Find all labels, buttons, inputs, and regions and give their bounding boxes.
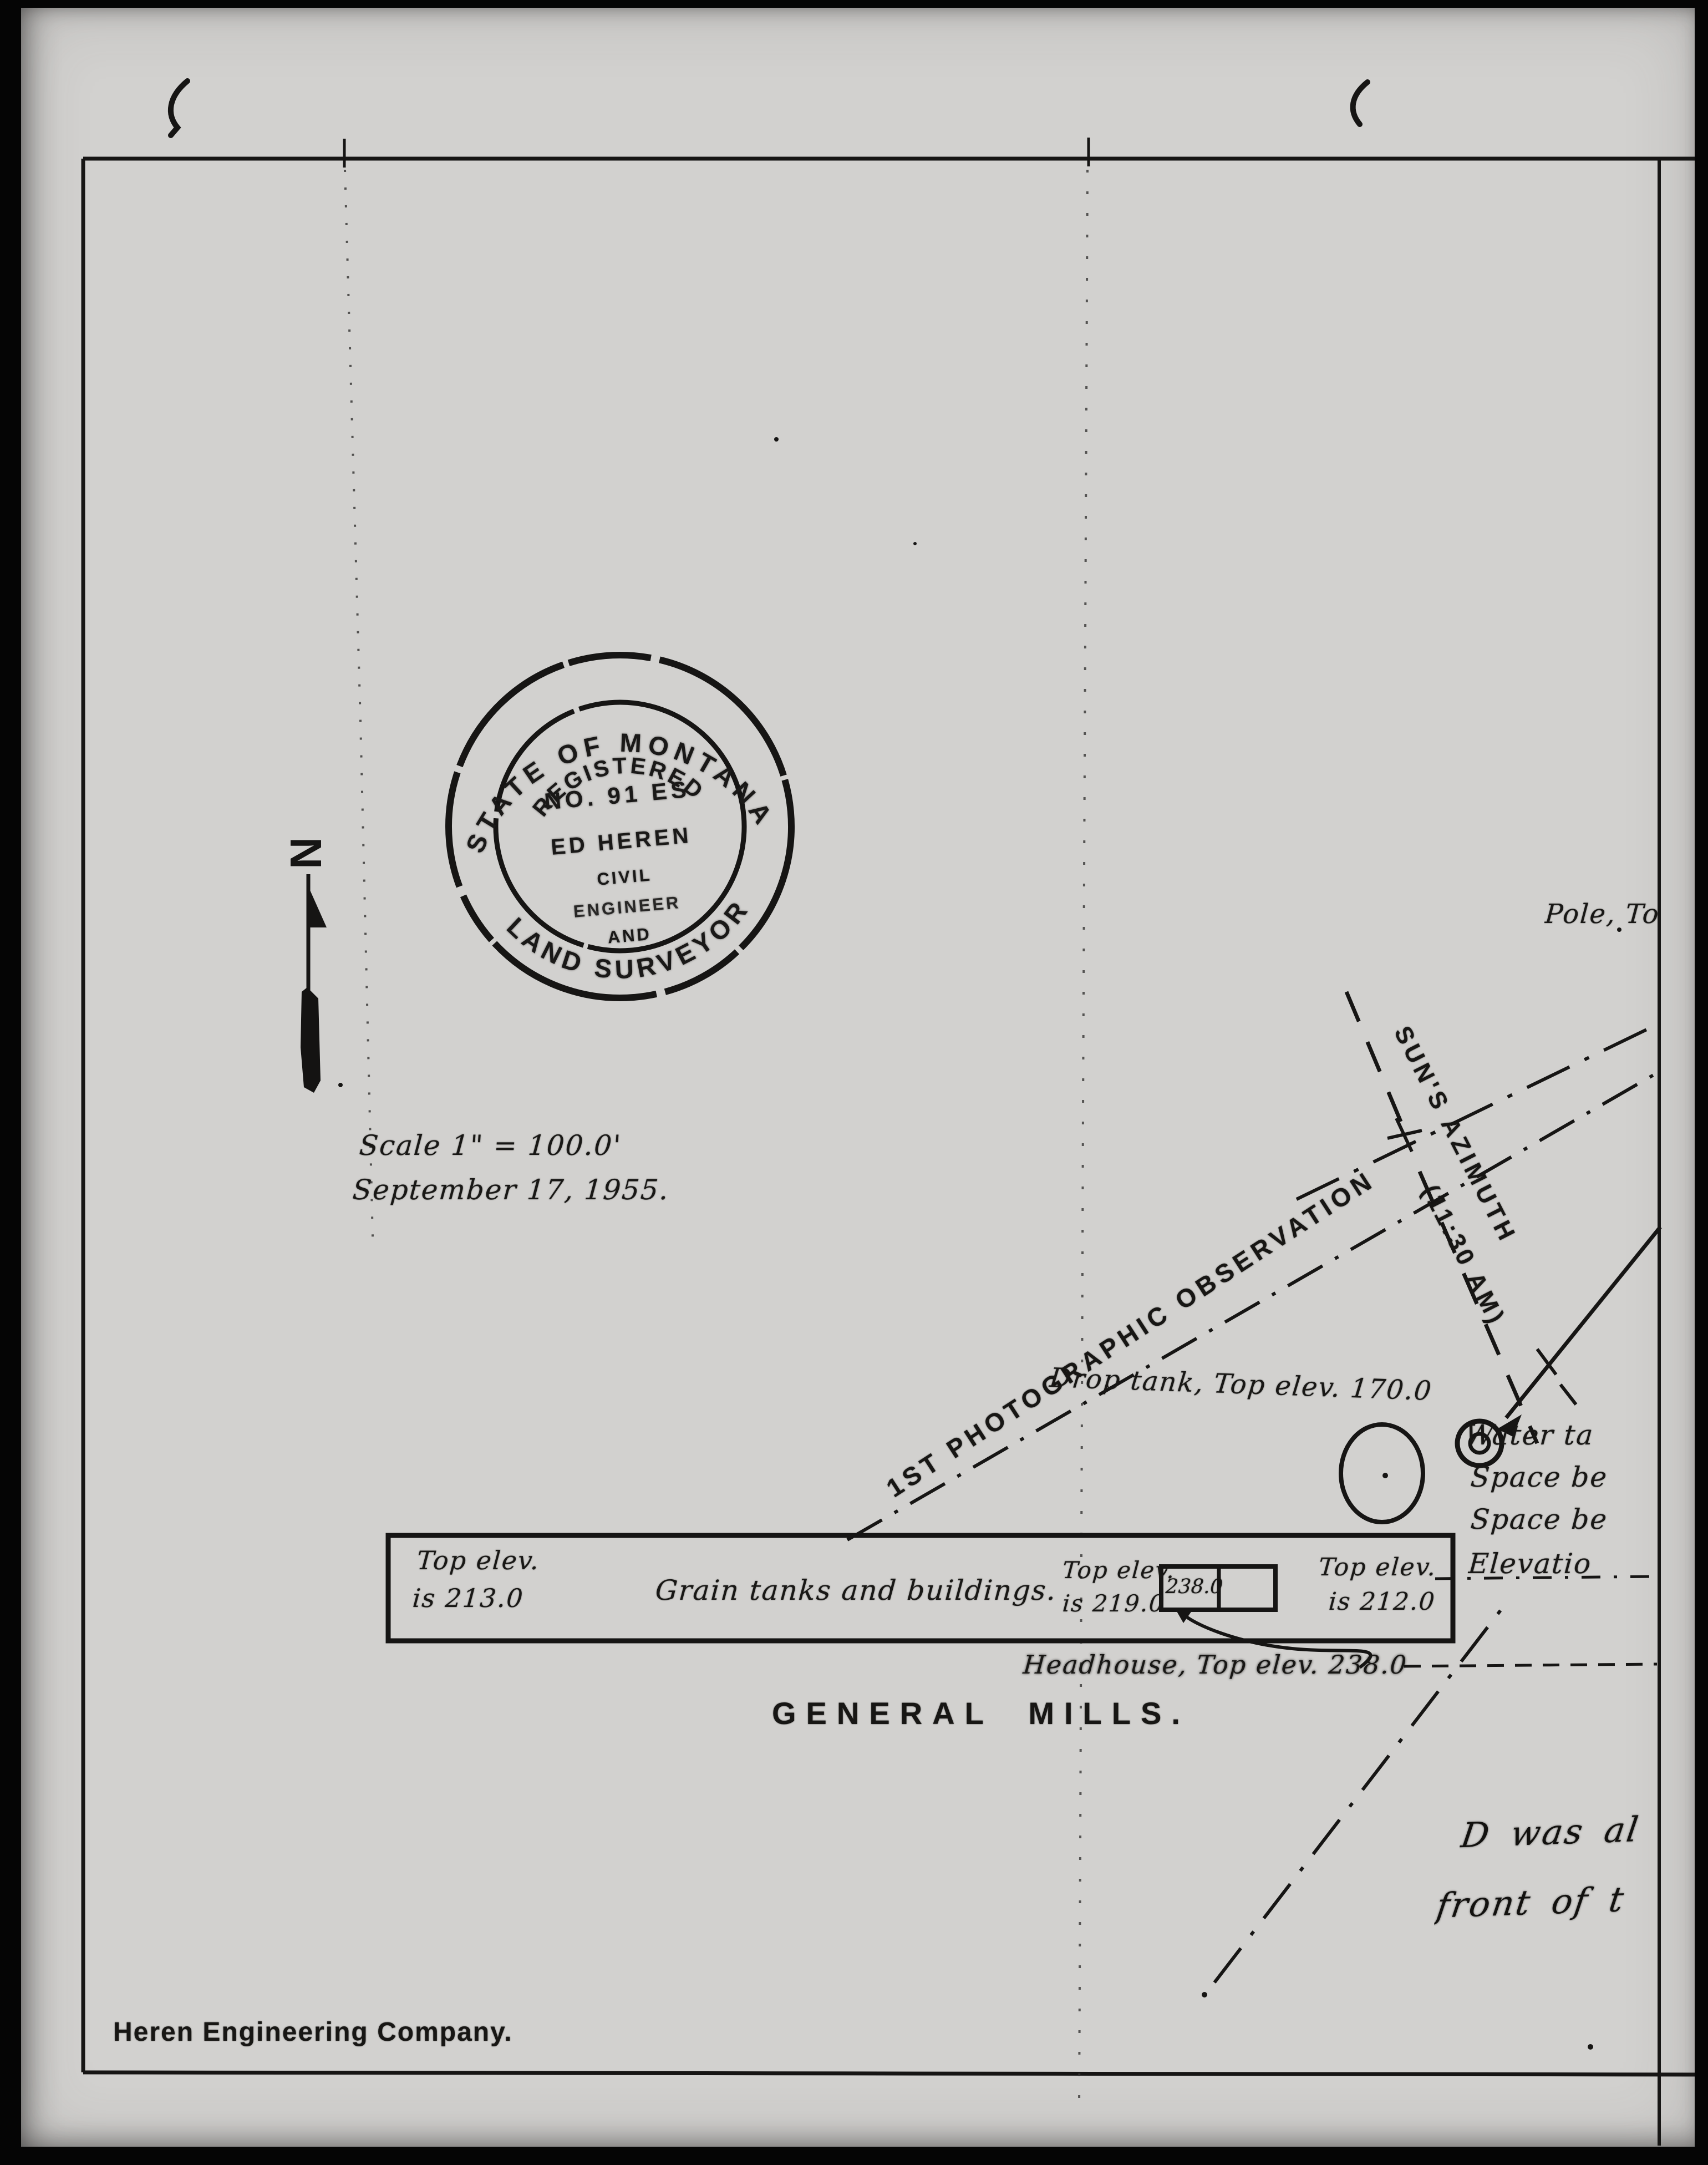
- grain-left-elev-value: is 213.0: [411, 1583, 525, 1613]
- stamp-title-civil: CIVIL: [596, 865, 653, 889]
- grain-right-elev-value: is 212.0: [1328, 1588, 1436, 1616]
- margin-note-line1: D was al: [1458, 1808, 1663, 1855]
- headhouse-box-value: 238.0: [1165, 1575, 1224, 1598]
- grain-mid-elev-value: is 219.0: [1061, 1590, 1166, 1617]
- firm-name: Heren Engineering Company.: [113, 2017, 513, 2047]
- pen-mark-right-paren: [1353, 82, 1368, 124]
- water-note-line: Elevatio: [1467, 1548, 1659, 1580]
- stamp-title-engineer: ENGINEER: [573, 893, 682, 921]
- north-arrow-tail: [301, 987, 321, 1093]
- water-note-line: Space be: [1470, 1503, 1659, 1535]
- water-note-line: Space be: [1470, 1461, 1659, 1493]
- grain-tanks-label: Grain tanks and buildings.: [654, 1574, 1058, 1606]
- line-tick: [1560, 1385, 1576, 1405]
- north-arrow: N: [281, 837, 331, 1093]
- date-note: September 17, 1955.: [352, 1174, 670, 1206]
- north-letter: N: [281, 837, 331, 869]
- north-arrow-barb: [308, 886, 327, 927]
- stamp-title-and: AND: [607, 924, 652, 947]
- grain-mid-elev-label: Top elev.: [1061, 1556, 1176, 1584]
- site-title: GENERAL MILLS.: [772, 1695, 1190, 1731]
- fold-crease-right: [1079, 170, 1087, 2108]
- survey-linework-layer: STATE OF MONTANA LAND SURVEYOR REGISTERE…: [0, 0, 1708, 2165]
- drop-tank-symbol: [1341, 1424, 1423, 1522]
- pen-mark-left-paren: [171, 81, 187, 135]
- dashed-line-lower-right: [1404, 1664, 1657, 1666]
- stamp-name: ED HEREN: [550, 823, 693, 860]
- headhouse-note: Headhouse, Top elev. 238.0: [1022, 1650, 1409, 1680]
- surveyor-stamp: STATE OF MONTANA LAND SURVEYOR REGISTERE…: [434, 641, 806, 1012]
- scanned-survey-sheet: STATE OF MONTANA LAND SURVEYOR REGISTERE…: [0, 0, 1708, 2165]
- water-note-line: Water ta: [1464, 1419, 1659, 1451]
- fold-crease-left: [345, 170, 373, 1237]
- grain-left-elev-label: Top elev.: [416, 1545, 541, 1575]
- grain-right-elev-label: Top elev.: [1318, 1553, 1437, 1581]
- pole-label: Pole, Top: [1544, 899, 1660, 930]
- margin-note-line2: front of t: [1434, 1878, 1663, 1926]
- scale-note: Scale 1" = 100.0': [358, 1129, 623, 1162]
